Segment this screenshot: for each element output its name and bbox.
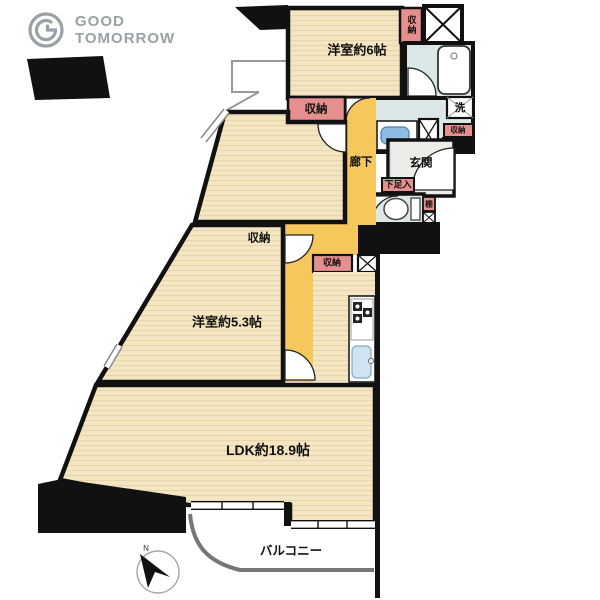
label-closet-kitchen: 収納 [323, 259, 341, 268]
label-balcony: バルコニー [260, 545, 322, 558]
wall-mass-entrance [358, 222, 440, 254]
label-ldk: LDK約18.9帖 [226, 443, 310, 457]
floorplan-canvas: GOOD TOMORROW 洋室約6帖 収納 洗 収納 玄関 廊下 下足入 棚 … [0, 0, 600, 600]
label-compass-north: N [143, 545, 149, 553]
label-shelf: 棚 [425, 200, 433, 208]
kitchen-sink [352, 346, 371, 378]
floorplan-drawing [0, 0, 600, 600]
label-closet-53: 収納 [248, 233, 271, 245]
label-corridor: 廊下 [350, 157, 373, 169]
label-closet-top-right: 収納 [407, 15, 416, 35]
label-entrance: 玄関 [410, 158, 433, 170]
logo-line1: GOOD [75, 13, 175, 30]
brand-logo: GOOD TOMORROW [26, 10, 175, 50]
label-closet-middle-top: 収納 [305, 104, 328, 116]
logo-line2: TOMORROW [75, 30, 175, 47]
sink-faucet-icon [369, 359, 374, 364]
toilet-tank [411, 198, 420, 220]
label-bedroom-53: 洋室約5.3帖 [192, 316, 262, 329]
label-closet-washroom: 収納 [451, 126, 466, 134]
bathtub-faucet-icon [451, 53, 457, 59]
label-shoe-cabinet: 下足入 [384, 181, 411, 190]
toilet-bowl [384, 199, 408, 220]
label-laundry: 洗 [455, 103, 466, 114]
label-bedroom-6: 洋室約6帖 [327, 44, 386, 57]
stove-burner-ring [356, 305, 360, 309]
window-step-wall [284, 502, 291, 526]
good-tomorrow-mark-icon [26, 10, 66, 50]
neighbor-wall-block-left [27, 56, 110, 100]
stove-burner-ring [366, 311, 370, 315]
stove-burner-ring [356, 317, 360, 321]
